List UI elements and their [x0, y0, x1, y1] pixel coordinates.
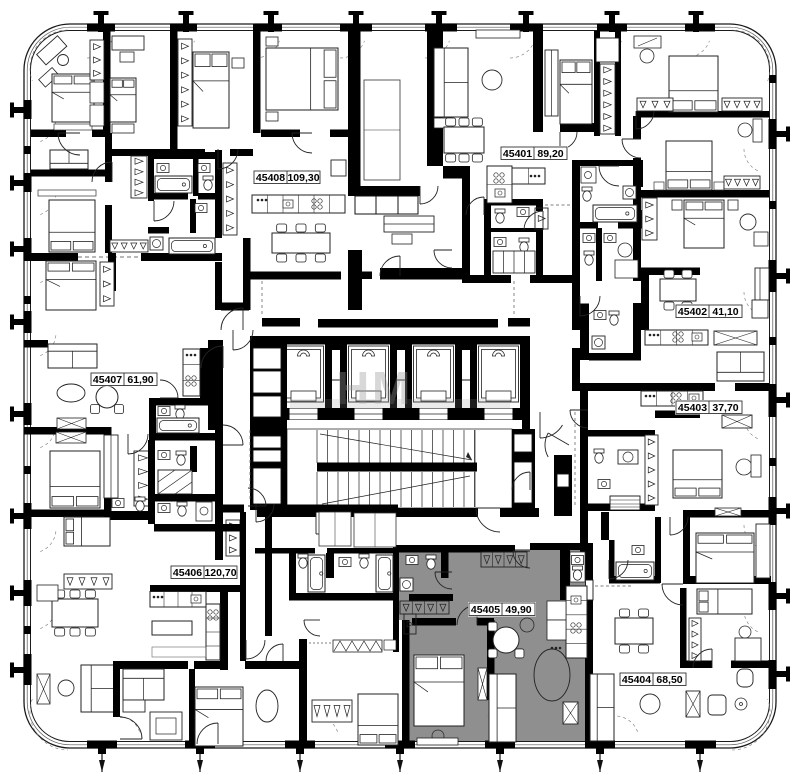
svg-text:37,70: 37,70 [712, 402, 738, 414]
svg-text:89,20: 89,20 [537, 148, 563, 160]
svg-text:45407: 45407 [93, 374, 122, 386]
svg-text:45404: 45404 [622, 674, 651, 686]
svg-text:45406: 45406 [173, 567, 202, 579]
svg-text:45401: 45401 [503, 148, 532, 160]
svg-text:68,50: 68,50 [656, 674, 682, 686]
svg-text:45405: 45405 [471, 604, 500, 616]
svg-text:61,90: 61,90 [127, 374, 153, 386]
svg-text:49,90: 49,90 [505, 604, 531, 616]
svg-text:120,70: 120,70 [204, 567, 236, 579]
svg-text:45408: 45408 [256, 172, 285, 184]
svg-text:109,30: 109,30 [287, 172, 319, 184]
svg-text:45402: 45402 [678, 306, 707, 318]
svg-text:41,10: 41,10 [712, 306, 738, 318]
svg-text:45403: 45403 [678, 402, 707, 414]
